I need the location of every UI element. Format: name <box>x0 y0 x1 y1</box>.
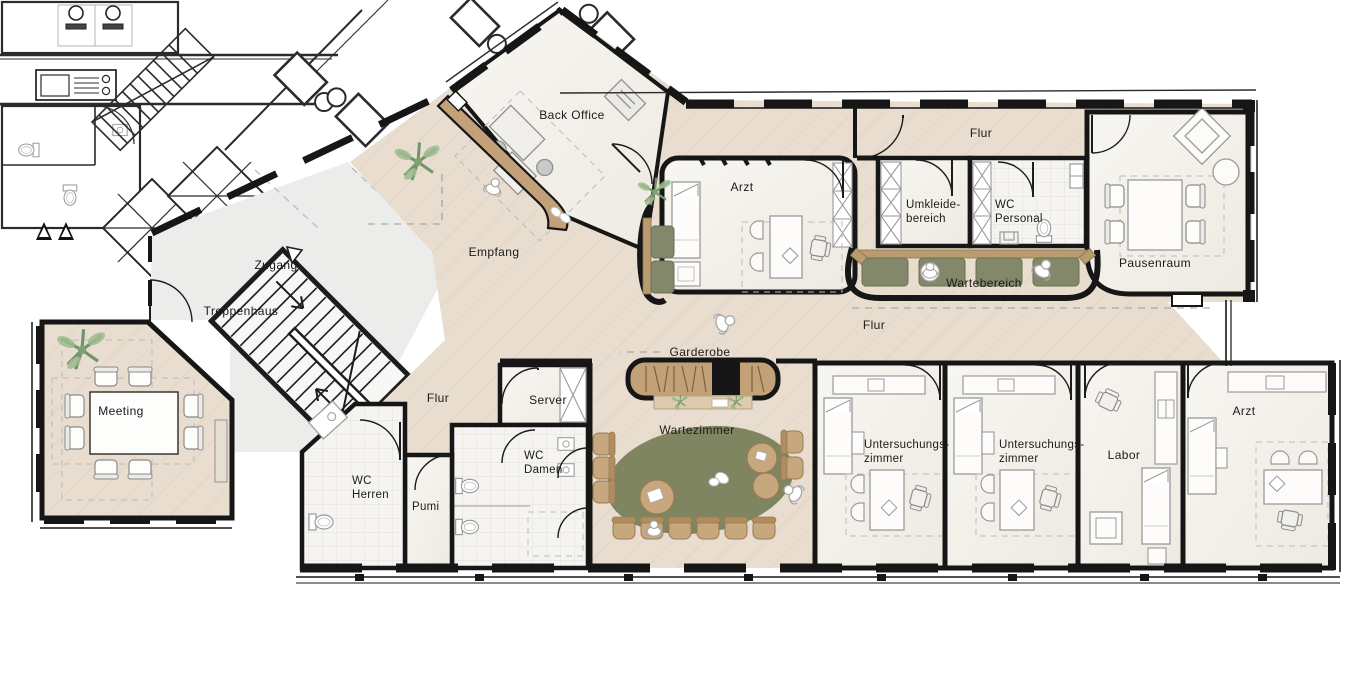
label-wc-damen-1: WC <box>524 450 544 462</box>
side-table <box>753 473 779 499</box>
room-untersuchung-1 <box>815 363 952 568</box>
label-server: Server <box>529 393 567 407</box>
door-markers <box>36 222 74 240</box>
bench-cushion <box>651 261 674 293</box>
bench-cushion <box>862 258 908 286</box>
label-zugang: Zugang <box>254 258 297 272</box>
label-flur-lower: Flur <box>427 391 449 405</box>
label-umkleide-1: Umkleide- <box>906 199 960 211</box>
room-arzt-right <box>1183 363 1332 568</box>
label-flur-top: Flur <box>970 126 992 140</box>
label-umkleide-2: bereich <box>906 213 946 225</box>
label-garderobe: Garderobe <box>670 345 731 359</box>
room-wc-personal <box>970 158 1086 246</box>
room-wc-damen <box>452 425 588 568</box>
label-pausenraum: Pausenraum <box>1119 256 1191 270</box>
label-wartebereich: Wartebereich <box>946 276 1022 290</box>
label-treppenhaus: Treppenhaus <box>204 304 279 318</box>
label-flur-main: Flur <box>863 318 885 332</box>
label-wc-personal-1: WC <box>995 199 1015 211</box>
label-wc-damen-2: Damen <box>524 464 563 476</box>
label-wc-herren-1: WC <box>352 475 372 487</box>
kitchenette <box>36 70 116 100</box>
wardrobe-strip <box>973 162 991 244</box>
label-wartezimmer: Wartezimmer <box>659 423 734 437</box>
label-untersuchung-2a: Untersuchungs- <box>999 439 1084 451</box>
label-untersuchung-2b: zimmer <box>999 453 1039 465</box>
label-back-office: Back Office <box>539 108 605 122</box>
label-pumi: Pumi <box>412 501 439 513</box>
room-arzt-left <box>662 158 855 292</box>
meeting-table <box>90 392 178 454</box>
label-meeting: Meeting <box>98 404 144 418</box>
sideboard <box>215 420 227 482</box>
floor-plan-svg: Back Office Flur Arzt Umkleide- bereich … <box>0 0 1371 684</box>
wardrobe-strip <box>881 162 901 244</box>
bench-cushion <box>651 226 674 258</box>
floor-plan: Back Office Flur Arzt Umkleide- bereich … <box>0 0 1371 684</box>
label-wc-personal-2: Personal <box>995 213 1043 225</box>
label-untersuchung-1b: zimmer <box>864 453 904 465</box>
label-empfang: Empfang <box>469 245 520 259</box>
label-labor: Labor <box>1108 448 1141 462</box>
room-untersuchung-2 <box>945 363 1082 568</box>
label-untersuchung-1a: Untersuchungs- <box>864 439 949 451</box>
room-labor <box>1078 363 1183 568</box>
label-arzt-left: Arzt <box>731 180 754 194</box>
label-wc-herren-2: Herren <box>352 489 389 501</box>
label-arzt-right: Arzt <box>1233 404 1256 418</box>
